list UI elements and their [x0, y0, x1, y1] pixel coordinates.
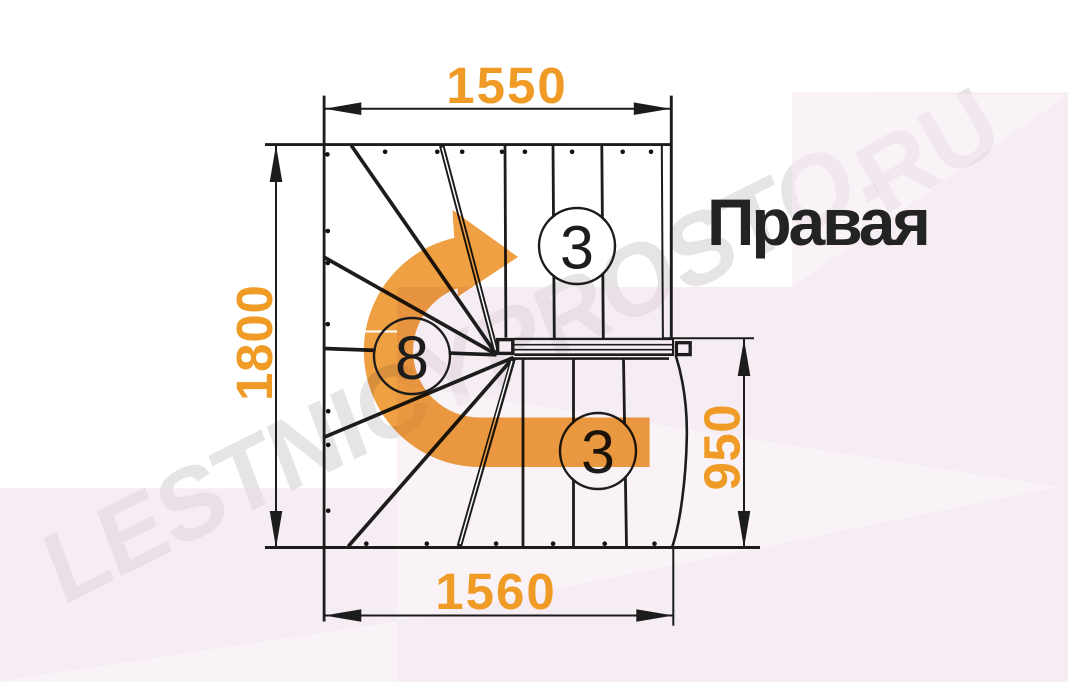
svg-text:Правая: Правая [707, 185, 928, 259]
svg-text:3: 3 [560, 214, 594, 282]
svg-text:1800: 1800 [226, 284, 283, 401]
svg-text:8: 8 [395, 324, 429, 392]
svg-text:950: 950 [694, 404, 751, 491]
svg-text:1550: 1550 [446, 57, 567, 114]
svg-text:1560: 1560 [435, 563, 556, 620]
